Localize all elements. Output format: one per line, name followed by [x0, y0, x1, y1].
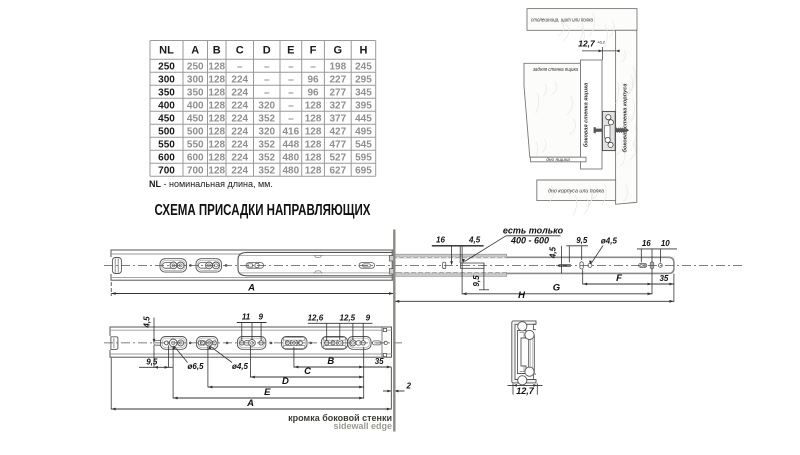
svg-text:128: 128 [208, 87, 225, 98]
svg-text:477: 477 [329, 139, 346, 150]
svg-text:627: 627 [329, 165, 346, 176]
svg-text:10: 10 [661, 239, 670, 248]
svg-text:250: 250 [187, 61, 204, 72]
svg-text:96: 96 [307, 87, 319, 98]
svg-text:320: 320 [258, 100, 275, 111]
svg-text:–: – [288, 87, 294, 98]
svg-text:12,7: 12,7 [578, 39, 596, 49]
svg-text:128: 128 [305, 152, 322, 163]
svg-text:224: 224 [231, 139, 248, 150]
svg-text:столешница, щит или полка: столешница, щит или полка [531, 18, 593, 24]
svg-text:495: 495 [355, 126, 372, 137]
svg-text:NL: NL [159, 45, 174, 57]
svg-text:–: – [288, 74, 294, 85]
svg-text:128: 128 [208, 165, 225, 176]
svg-text:300: 300 [187, 74, 204, 85]
svg-text:527: 527 [329, 152, 346, 163]
svg-text:198: 198 [329, 61, 346, 72]
svg-text:377: 377 [329, 113, 346, 124]
svg-text:695: 695 [355, 165, 372, 176]
svg-text:–: – [264, 74, 270, 85]
svg-text:H: H [518, 290, 526, 301]
svg-text:400: 400 [158, 100, 175, 111]
svg-text:550: 550 [158, 139, 175, 150]
svg-text:128: 128 [305, 113, 322, 124]
svg-text:250: 250 [158, 61, 175, 72]
svg-text:395: 395 [355, 100, 372, 111]
svg-text:227: 227 [329, 74, 346, 85]
svg-text:400: 400 [187, 100, 204, 111]
svg-text:400 - 600: 400 - 600 [510, 236, 549, 246]
svg-text:416: 416 [283, 126, 300, 137]
svg-text:12,6: 12,6 [308, 313, 324, 322]
svg-text:295: 295 [355, 74, 372, 85]
svg-text:F: F [616, 273, 622, 284]
svg-text:+0,2: +0,2 [597, 40, 606, 45]
svg-text:sidewall edge: sidewall edge [333, 421, 392, 431]
svg-text:D: D [263, 45, 271, 57]
svg-text:224: 224 [231, 126, 248, 137]
svg-text:352: 352 [258, 152, 275, 163]
svg-text:224: 224 [231, 152, 248, 163]
svg-text:A: A [191, 45, 199, 57]
svg-text:224: 224 [231, 113, 248, 124]
svg-text:9: 9 [366, 313, 371, 322]
svg-text:700: 700 [187, 165, 204, 176]
svg-text:600: 600 [187, 152, 204, 163]
svg-text:–: – [310, 61, 316, 72]
svg-text:есть только: есть только [503, 226, 564, 236]
svg-text:16: 16 [436, 236, 445, 245]
svg-text:H: H [359, 45, 367, 57]
svg-text:500: 500 [158, 126, 175, 137]
svg-text:–: – [288, 113, 294, 124]
svg-text:35: 35 [659, 274, 668, 283]
svg-text:E: E [264, 387, 271, 398]
svg-text:35: 35 [375, 357, 384, 366]
svg-text:9,5: 9,5 [472, 275, 481, 287]
svg-text:352: 352 [258, 113, 275, 124]
svg-text:9: 9 [258, 313, 263, 322]
svg-text:448: 448 [283, 139, 300, 150]
svg-text:327: 327 [329, 100, 346, 111]
svg-text:224: 224 [231, 100, 248, 111]
svg-text:500: 500 [187, 126, 204, 137]
svg-text:595: 595 [355, 152, 372, 163]
svg-text:96: 96 [307, 74, 319, 85]
svg-text:B: B [327, 356, 334, 367]
svg-text:345: 345 [355, 87, 372, 98]
svg-text:–: – [264, 87, 270, 98]
svg-text:16: 16 [642, 239, 651, 248]
svg-text:9,5: 9,5 [576, 236, 588, 245]
svg-text:128: 128 [305, 100, 322, 111]
svg-text:NL - номинальная длина, мм.: NL - номинальная длина, мм. [149, 179, 273, 189]
svg-text:D: D [282, 376, 289, 387]
svg-text:445: 445 [355, 113, 372, 124]
svg-text:12,7: 12,7 [516, 386, 535, 396]
svg-text:350: 350 [187, 87, 204, 98]
svg-text:224: 224 [231, 165, 248, 176]
svg-text:320: 320 [258, 126, 275, 137]
svg-text:300: 300 [158, 74, 175, 85]
svg-text:545: 545 [355, 139, 372, 150]
svg-text:128: 128 [208, 100, 225, 111]
svg-text:боковая стенка ящика: боковая стенка ящика [583, 83, 590, 147]
svg-text:128: 128 [208, 113, 225, 124]
svg-text:224: 224 [231, 74, 248, 85]
svg-text:9,5: 9,5 [146, 357, 158, 366]
svg-text:–: – [237, 61, 243, 72]
svg-text:C: C [236, 45, 244, 57]
svg-text:352: 352 [258, 139, 275, 150]
svg-text:G: G [553, 283, 561, 294]
svg-text:A: A [247, 282, 255, 293]
svg-text:427: 427 [329, 126, 346, 137]
svg-text:G: G [334, 45, 343, 57]
svg-text:E: E [287, 45, 294, 57]
svg-text:450: 450 [187, 113, 204, 124]
svg-text:480: 480 [283, 165, 300, 176]
svg-text:ø4,5: ø4,5 [601, 236, 618, 245]
svg-text:–: – [288, 100, 294, 111]
svg-text:128: 128 [208, 61, 225, 72]
svg-text:ø6,5: ø6,5 [187, 362, 204, 371]
svg-text:352: 352 [258, 165, 275, 176]
svg-text:128: 128 [305, 139, 322, 150]
svg-text:4,5: 4,5 [468, 236, 481, 245]
svg-text:12,5: 12,5 [340, 313, 356, 322]
svg-text:11: 11 [242, 313, 251, 322]
svg-text:128: 128 [208, 139, 225, 150]
svg-text:B: B [213, 45, 221, 57]
svg-text:350: 350 [158, 87, 175, 98]
svg-text:СХЕМА ПРИСАДКИ НАПРАВЛЯЮЩИХ: СХЕМА ПРИСАДКИ НАПРАВЛЯЮЩИХ [155, 202, 371, 219]
svg-text:–: – [264, 61, 270, 72]
svg-text:A: A [246, 398, 254, 409]
svg-text:224: 224 [231, 87, 248, 98]
svg-text:600: 600 [158, 152, 175, 163]
svg-text:128: 128 [208, 152, 225, 163]
svg-text:550: 550 [187, 139, 204, 150]
svg-text:F: F [310, 45, 317, 57]
svg-text:128: 128 [305, 165, 322, 176]
svg-text:–: – [288, 61, 294, 72]
svg-text:дно корпуса или полка: дно корпуса или полка [548, 189, 604, 195]
svg-text:245: 245 [355, 61, 372, 72]
svg-text:ø4,5: ø4,5 [232, 362, 249, 371]
svg-text:480: 480 [283, 152, 300, 163]
svg-text:128: 128 [208, 74, 225, 85]
svg-text:4,5: 4,5 [549, 246, 558, 259]
svg-text:4,5: 4,5 [142, 316, 151, 329]
svg-text:2: 2 [406, 382, 412, 391]
svg-text:задняя стенка ящика: задняя стенка ящика [532, 67, 578, 73]
svg-text:дно ящика: дно ящика [546, 157, 570, 163]
svg-text:700: 700 [158, 165, 175, 176]
svg-text:боковая стенка корпуса: боковая стенка корпуса [622, 84, 629, 153]
svg-text:128: 128 [305, 126, 322, 137]
svg-text:128: 128 [208, 126, 225, 137]
svg-text:450: 450 [158, 113, 175, 124]
svg-text:277: 277 [329, 87, 346, 98]
svg-text:C: C [304, 366, 311, 377]
